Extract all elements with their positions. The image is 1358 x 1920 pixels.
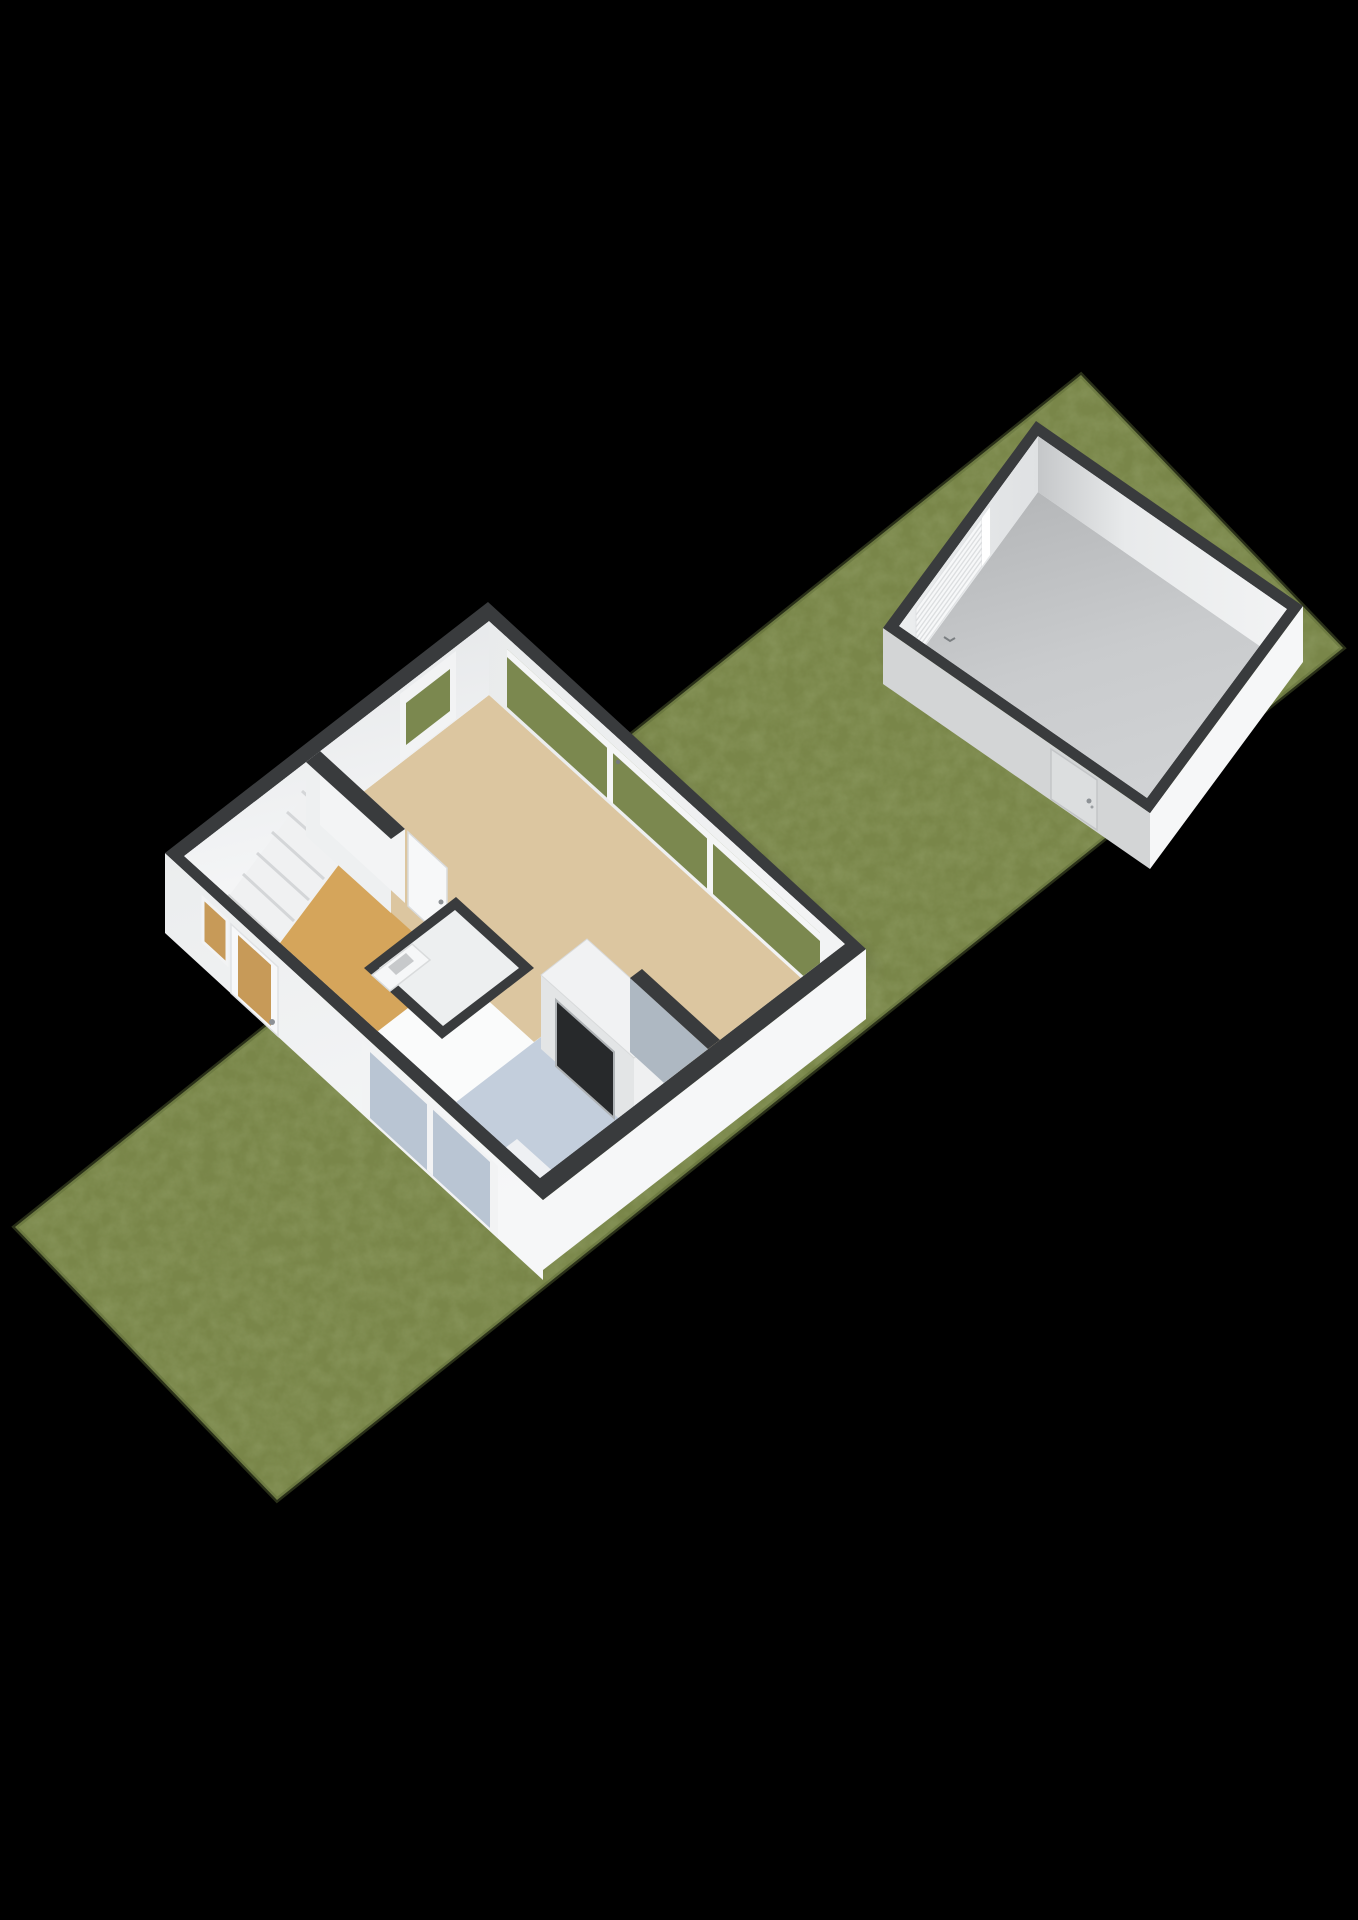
side-door-keyhole-icon bbox=[1091, 806, 1094, 809]
floorplan-3d-view[interactable] bbox=[0, 0, 1358, 1920]
sliding-door-mullion-2 bbox=[707, 831, 713, 895]
floorplan-canvas bbox=[0, 0, 1358, 1920]
side-door-handle-icon bbox=[1087, 799, 1092, 804]
entry-door-handle-icon bbox=[269, 1019, 275, 1025]
sliding-door-mullion bbox=[607, 740, 613, 804]
sliding-door-handle-icon bbox=[616, 760, 620, 764]
kitchen-window-mullion bbox=[427, 1102, 433, 1176]
interior-door-handle-icon bbox=[439, 900, 444, 905]
